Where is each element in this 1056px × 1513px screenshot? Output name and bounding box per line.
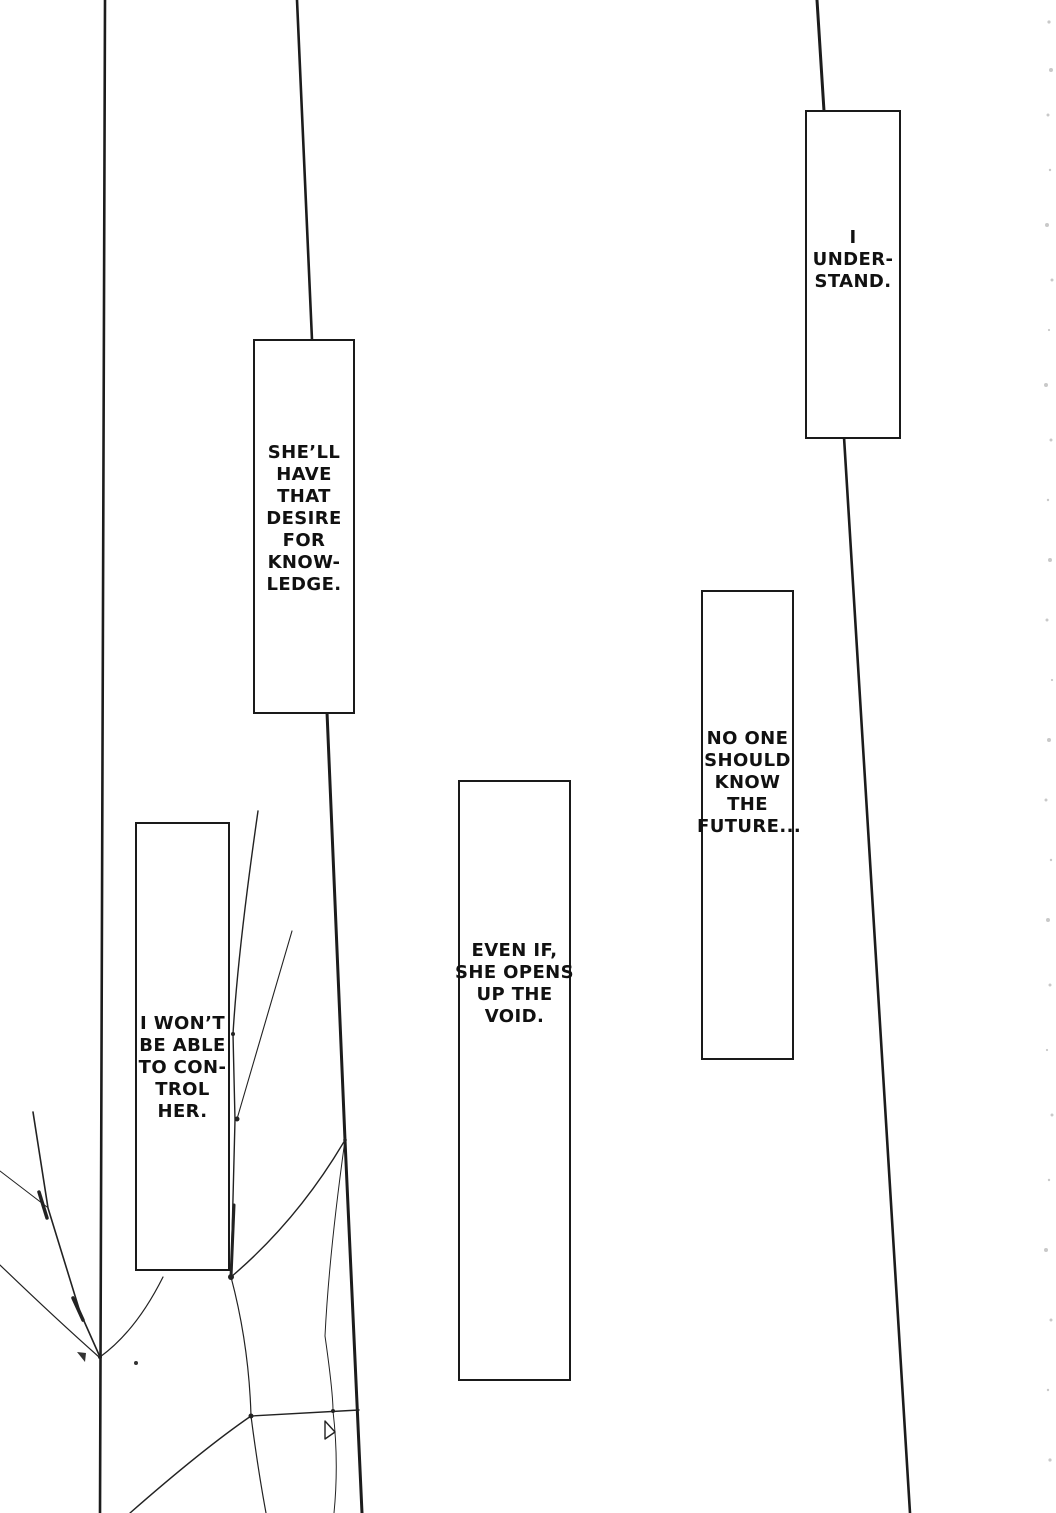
panel-line-left (100, 0, 105, 1513)
scan-grain-right-edge (1044, 20, 1054, 1461)
speech-box-no-one-future: NO ONE SHOULD KNOW THE FUTURE... (701, 590, 794, 1060)
speech-text: SHE’LL HAVE THAT DESIRE FOR KNOW- LEDGE. (249, 442, 359, 596)
manga-page: I UNDER- STAND. SHE’LL HAVE THAT DESIRE … (0, 0, 1056, 1513)
speech-box-even-if-void: EVEN IF, SHE OPENS UP THE VOID. (458, 780, 571, 1381)
speech-text: I UNDER- STAND. (801, 227, 905, 293)
speech-text: I WON’T BE ABLE TO CON- TROL HER. (131, 1013, 234, 1123)
speech-box-i-understand: I UNDER- STAND. (805, 110, 901, 439)
speech-box-cant-control: I WON’T BE ABLE TO CON- TROL HER. (135, 822, 230, 1271)
diagonal-line-left (297, 0, 362, 1513)
speech-text: EVEN IF, SHE OPENS UP THE VOID. (454, 940, 575, 1028)
speech-text: NO ONE SHOULD KNOW THE FUTURE... (697, 728, 798, 838)
speech-box-desire-knowledge: SHE’LL HAVE THAT DESIRE FOR KNOW- LEDGE. (253, 339, 355, 714)
